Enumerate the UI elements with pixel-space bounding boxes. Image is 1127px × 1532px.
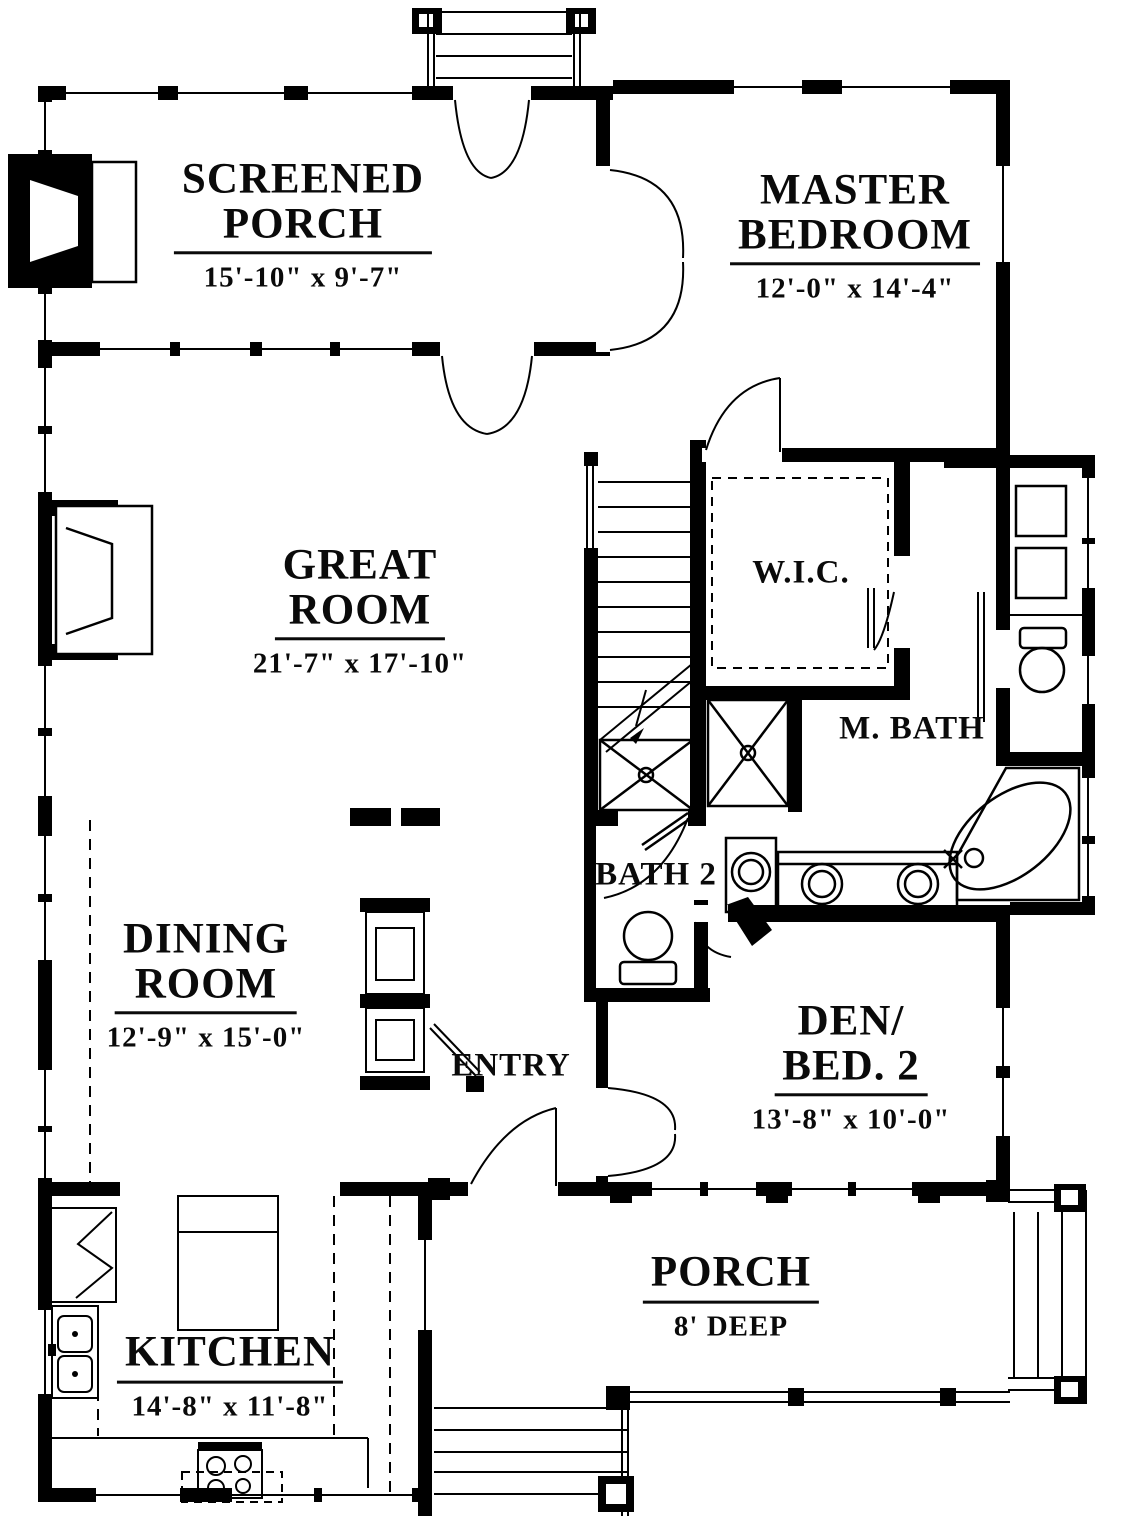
bottom-steps-icon xyxy=(434,1408,634,1516)
top-steps-icon xyxy=(412,8,596,86)
room-name: PORCH xyxy=(643,1251,819,1304)
room-label-wic: W.I.C. xyxy=(752,555,849,592)
utility-sink-icon xyxy=(726,838,776,912)
room-name-line: PORCH xyxy=(651,1249,811,1296)
master-french-doors xyxy=(610,170,683,258)
toilet-icon xyxy=(1020,628,1066,692)
kitchen-island-icon xyxy=(178,1196,278,1330)
room-name-line: DEN/ xyxy=(798,997,905,1044)
room-name-line: KITCHEN xyxy=(125,1329,335,1376)
room-name: MASTERBEDROOM xyxy=(730,168,980,265)
refrigerator-icon xyxy=(48,1208,116,1302)
room-name-line: BED. 2 xyxy=(782,1042,919,1089)
den-double-door xyxy=(608,1088,675,1130)
room-label-great-room: GREATROOM 21'-7" x 17'-10" xyxy=(253,543,467,680)
washer-dryer-icon xyxy=(1010,486,1082,615)
room-dimensions: 14'-8" x 11'-8" xyxy=(117,1390,343,1423)
room-name: SCREENEDPORCH xyxy=(174,157,432,254)
room-name: KITCHEN xyxy=(117,1331,343,1384)
room-dimensions: 8' DEEP xyxy=(643,1310,819,1343)
room-label-screened-porch: SCREENEDPORCH 15'-10" x 9'-7" xyxy=(174,157,432,294)
great-room-fireplace-icon xyxy=(52,500,152,660)
double-vanity-icon xyxy=(778,852,957,908)
room-label-porch: PORCH 8' DEEP xyxy=(643,1251,819,1344)
room-name: GREATROOM xyxy=(275,543,446,640)
room-label-master-bedroom: MASTERBEDROOM 12'-0" x 14'-4" xyxy=(730,168,980,305)
stairs-icon xyxy=(584,452,698,752)
room-label-master-bath: M. BATH xyxy=(839,711,985,748)
room-label-kitchen: KITCHEN 14'-8" x 11'-8" xyxy=(117,1331,343,1424)
floor-plan: SCREENEDPORCH 15'-10" x 9'-7" MASTERBEDR… xyxy=(0,0,1127,1532)
room-name: DININGROOM xyxy=(115,917,297,1014)
corner-tub-icon xyxy=(930,761,1090,910)
room-dimensions: 21'-7" x 17'-10" xyxy=(253,648,467,681)
room-name-line: ROOM xyxy=(289,586,432,633)
room-name-line: PORCH xyxy=(223,200,383,247)
room-name-line: SCREENED xyxy=(182,155,424,202)
right-steps-icon xyxy=(1008,1184,1086,1404)
fireplaces xyxy=(8,154,152,660)
room-name-line: MASTER xyxy=(760,166,950,213)
shower-icon xyxy=(600,740,693,810)
room-dimensions: 13'-8" x 10'-0" xyxy=(752,1104,951,1137)
kitchen-sink-icon xyxy=(48,1306,98,1398)
room-label-entry: ENTRY xyxy=(451,1048,570,1085)
room-dimensions: 12'-9" x 15'-0" xyxy=(107,1022,306,1055)
room-label-bath-2: BATH 2 xyxy=(595,857,717,894)
room-label-dining-room: DININGROOM 12'-9" x 15'-0" xyxy=(107,917,306,1054)
porch-fireplace-icon xyxy=(8,154,136,288)
room-name-line: DINING xyxy=(123,915,289,962)
shower-icon xyxy=(708,700,788,806)
room-label-den-bed-2: DEN/BED. 2 13'-8" x 10'-0" xyxy=(752,999,951,1136)
toilet-icon xyxy=(620,912,676,984)
room-name-line: BEDROOM xyxy=(738,211,972,258)
room-dimensions: 15'-10" x 9'-7" xyxy=(174,262,432,295)
room-name: DEN/BED. 2 xyxy=(774,999,927,1096)
room-dimensions: 12'-0" x 14'-4" xyxy=(730,273,980,306)
room-name-line: ROOM xyxy=(135,960,278,1007)
room-name-line: GREAT xyxy=(283,541,438,588)
porch-greatroom-double-door xyxy=(442,356,487,434)
porch-entry-double-door xyxy=(455,100,491,178)
